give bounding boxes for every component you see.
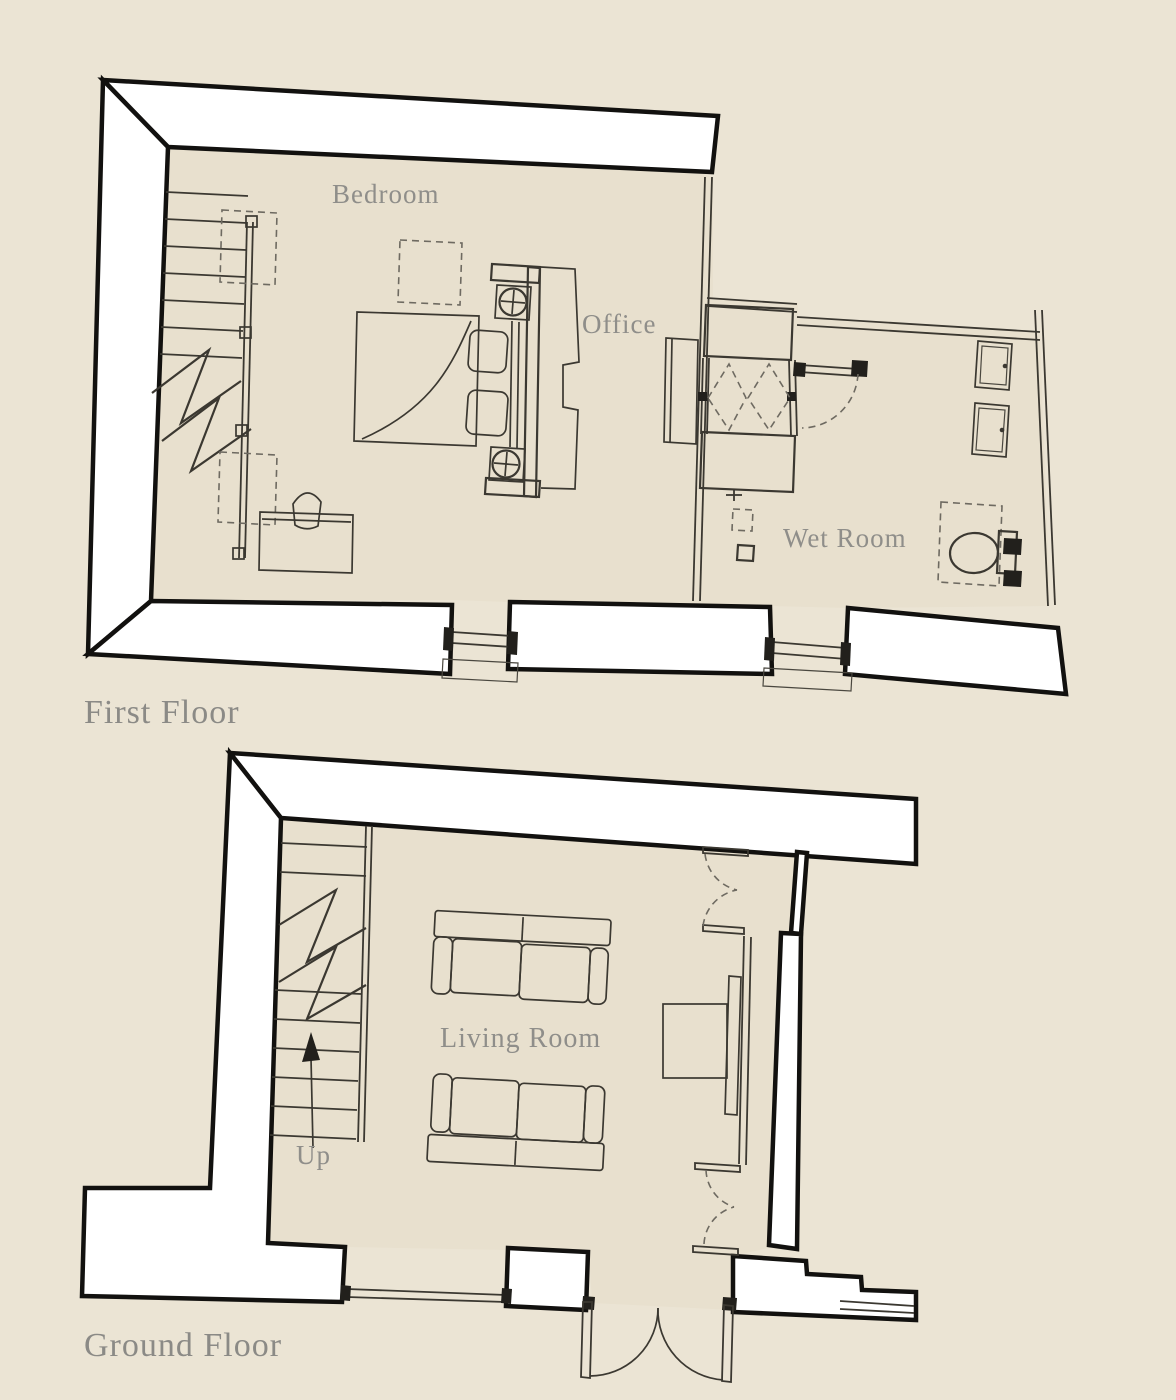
ground-floor-interior: [268, 818, 800, 1310]
first-floor-plan: Bedroom Office Wet Room First Floor: [84, 80, 1066, 731]
ground-floor-plan: Living Room Up Ground Floor: [82, 753, 916, 1382]
floorplan-page: Bedroom Office Wet Room First Floor: [0, 0, 1176, 1400]
up-label: Up: [296, 1140, 331, 1170]
first-floor-title: First Floor: [84, 694, 240, 731]
first-floor-interior: [151, 148, 1050, 608]
floorplan-drawing: Bedroom Office Wet Room First Floor: [0, 0, 1176, 1400]
bedroom-label: Bedroom: [332, 179, 440, 209]
office-label: Office: [582, 309, 656, 339]
ground-floor-title: Ground Floor: [84, 1327, 282, 1364]
living-room-label: Living Room: [440, 1023, 601, 1054]
wet-room-label: Wet Room: [783, 523, 907, 553]
ground-floor-window: [340, 1285, 512, 1304]
